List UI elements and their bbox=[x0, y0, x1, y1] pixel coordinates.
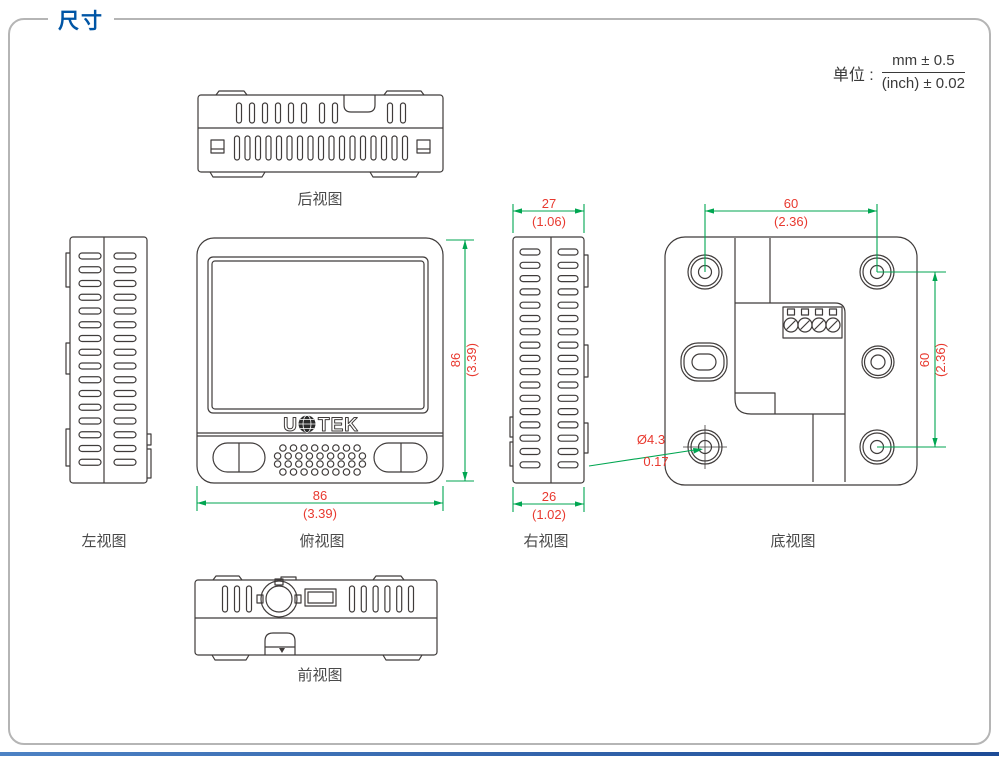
vent-slot bbox=[558, 369, 578, 375]
vent-slot bbox=[558, 342, 578, 348]
dim-60-h-mm: 60 bbox=[751, 196, 831, 211]
vent-slot bbox=[329, 136, 334, 160]
vent-slot bbox=[558, 355, 578, 361]
speaker-hole bbox=[285, 453, 291, 459]
vent-slot bbox=[401, 103, 406, 123]
vent-slot bbox=[79, 281, 101, 287]
usb-port bbox=[305, 589, 336, 606]
vent-slot bbox=[114, 446, 136, 452]
speaker-hole bbox=[327, 453, 333, 459]
vent-slot bbox=[558, 302, 578, 308]
speaker-hole bbox=[301, 469, 307, 475]
vent-slot bbox=[520, 302, 540, 308]
globe-icon bbox=[299, 416, 316, 433]
vent-slot bbox=[114, 281, 136, 287]
speaker-hole bbox=[280, 469, 286, 475]
left-button bbox=[213, 443, 265, 472]
dim-86-height: 86 (3.39) bbox=[446, 315, 482, 405]
units-label: 单位 : bbox=[833, 61, 874, 85]
vent-slot bbox=[277, 136, 282, 160]
dimension-lines bbox=[197, 204, 946, 512]
dim-60-v-mm: 60 bbox=[917, 315, 933, 405]
units-mm: mm ± 0.5 bbox=[882, 52, 965, 73]
rear-bottom-tabs bbox=[210, 172, 419, 177]
vent-slot bbox=[79, 322, 101, 328]
speaker-hole bbox=[327, 461, 333, 467]
screw-slot bbox=[787, 321, 796, 330]
vent-slot bbox=[558, 395, 578, 401]
vent-slot bbox=[320, 103, 325, 123]
vent-slot bbox=[79, 446, 101, 452]
vent-slot bbox=[79, 377, 101, 383]
vent-slot bbox=[558, 289, 578, 295]
vent-slot bbox=[558, 262, 578, 268]
vent-slot bbox=[558, 249, 578, 255]
units-fraction: mm ± 0.5 (inch) ± 0.02 bbox=[882, 52, 965, 93]
mounting-holes bbox=[688, 255, 894, 464]
vent-slot bbox=[114, 432, 136, 438]
vent-slot bbox=[114, 418, 136, 424]
rear-bottom-vents bbox=[235, 136, 408, 160]
vent-slot bbox=[361, 586, 366, 612]
speaker-hole bbox=[312, 469, 318, 475]
dim-27-mm: 27 bbox=[509, 196, 589, 211]
vent-slot bbox=[558, 409, 578, 415]
vent-slot bbox=[520, 462, 540, 468]
logo-text-left: U bbox=[283, 415, 297, 436]
vent-slot bbox=[79, 349, 101, 355]
speaker-hole bbox=[274, 453, 280, 459]
bottom-view bbox=[665, 237, 917, 485]
screen-outer bbox=[208, 257, 428, 413]
vent-slot bbox=[340, 136, 345, 160]
front-left-vents bbox=[223, 586, 252, 612]
speaker-hole bbox=[274, 461, 280, 467]
right-view-vents-col2 bbox=[558, 249, 578, 468]
vent-slot bbox=[409, 586, 414, 612]
vent-slot bbox=[520, 409, 540, 415]
front-clip bbox=[265, 633, 295, 655]
vent-slot bbox=[350, 136, 355, 160]
speaker-hole bbox=[301, 445, 307, 451]
vent-slot bbox=[114, 308, 136, 314]
vent-slot bbox=[114, 363, 136, 369]
vent-slot bbox=[520, 249, 540, 255]
vent-slot bbox=[558, 462, 578, 468]
speaker-hole bbox=[306, 461, 312, 467]
vent-slot bbox=[276, 103, 281, 123]
left-view-vents-col1 bbox=[79, 253, 101, 465]
dim-26-inch: (1.02) bbox=[509, 507, 589, 522]
speaker-hole bbox=[354, 445, 360, 451]
vent-slot bbox=[79, 308, 101, 314]
left-view bbox=[66, 237, 151, 483]
vent-slot bbox=[333, 103, 338, 123]
vent-slot bbox=[302, 103, 307, 123]
logo-text-right: TEK bbox=[318, 415, 359, 436]
vent-slot bbox=[350, 586, 355, 612]
vent-slot bbox=[114, 404, 136, 410]
vent-slot bbox=[79, 418, 101, 424]
dim-86-height-inch: (3.39) bbox=[464, 315, 480, 405]
vent-slot bbox=[558, 435, 578, 441]
terminal-slot bbox=[802, 309, 809, 315]
vent-slot bbox=[558, 422, 578, 428]
speaker-hole bbox=[285, 461, 291, 467]
screw-slot bbox=[801, 321, 810, 330]
vent-slot bbox=[79, 432, 101, 438]
dim-60-v-inch: (2.36) bbox=[933, 315, 949, 405]
units-note: 单位 : mm ± 0.5 (inch) ± 0.02 bbox=[833, 52, 965, 93]
vent-slot bbox=[114, 336, 136, 342]
rear-view bbox=[198, 91, 443, 177]
speaker-hole bbox=[333, 469, 339, 475]
speaker-holes bbox=[274, 445, 365, 475]
vent-slot bbox=[245, 136, 250, 160]
rear-notch bbox=[344, 95, 375, 112]
vent-slot bbox=[520, 276, 540, 282]
dimension-drawing: U TEK bbox=[0, 0, 999, 763]
footer-bar bbox=[0, 752, 999, 756]
dim-86-width-inch: (3.39) bbox=[280, 506, 360, 521]
vent-slot bbox=[520, 449, 540, 455]
vent-slot bbox=[114, 377, 136, 383]
vent-slot bbox=[558, 316, 578, 322]
top-view: U TEK bbox=[197, 238, 443, 483]
top-view-label: 俯视图 bbox=[262, 530, 382, 551]
round-connector bbox=[257, 579, 301, 617]
units-inch: (inch) ± 0.02 bbox=[882, 73, 965, 93]
front-right-vents bbox=[350, 586, 414, 612]
dim-86-width-mm: 86 bbox=[280, 488, 360, 503]
speaker-hole bbox=[296, 453, 302, 459]
vent-slot bbox=[263, 103, 268, 123]
vent-slot bbox=[266, 136, 271, 160]
vent-slot bbox=[371, 136, 376, 160]
vent-slot bbox=[520, 329, 540, 335]
vent-slot bbox=[247, 586, 252, 612]
vent-slot bbox=[558, 382, 578, 388]
speaker-hole bbox=[312, 445, 318, 451]
speaker-hole bbox=[359, 461, 365, 467]
vent-slot bbox=[79, 336, 101, 342]
vent-slot bbox=[79, 391, 101, 397]
vent-slot bbox=[520, 435, 540, 441]
front-view-label: 前视图 bbox=[260, 664, 380, 685]
speaker-hole bbox=[354, 469, 360, 475]
vent-slot bbox=[79, 253, 101, 259]
bottom-view-label: 底视图 bbox=[733, 530, 853, 551]
speaker-hole bbox=[359, 453, 365, 459]
terminal-slot bbox=[788, 309, 795, 315]
vent-slot bbox=[235, 586, 240, 612]
speaker-hole bbox=[343, 469, 349, 475]
vent-slot bbox=[114, 322, 136, 328]
terminal-slot bbox=[830, 309, 837, 315]
vent-slot bbox=[520, 395, 540, 401]
speaker-hole bbox=[306, 453, 312, 459]
vent-slot bbox=[382, 136, 387, 160]
vent-slot bbox=[558, 329, 578, 335]
dim-60-v: 60 (2.36) bbox=[915, 315, 951, 405]
left-view-vents-col2 bbox=[114, 253, 136, 465]
speaker-hole bbox=[290, 469, 296, 475]
front-feet bbox=[212, 655, 422, 660]
speaker-hole bbox=[338, 461, 344, 467]
right-view bbox=[510, 237, 588, 483]
vent-slot bbox=[520, 355, 540, 361]
terminal-slot bbox=[816, 309, 823, 315]
right-view-vents-col1 bbox=[520, 249, 540, 468]
vent-slot bbox=[79, 363, 101, 369]
dim-60-h-inch: (2.36) bbox=[751, 214, 831, 229]
page-title: 尺寸 bbox=[48, 5, 114, 35]
speaker-hole bbox=[322, 469, 328, 475]
screen-inner bbox=[212, 261, 424, 409]
dim-86-height-mm: 86 bbox=[448, 315, 464, 405]
vent-slot bbox=[114, 294, 136, 300]
speaker-hole bbox=[290, 445, 296, 451]
front-view bbox=[195, 576, 437, 660]
vent-slot bbox=[385, 586, 390, 612]
uotek-logo: U TEK bbox=[283, 415, 359, 436]
side-hole bbox=[862, 346, 894, 378]
right-view-label: 右视图 bbox=[486, 530, 606, 551]
rear-top-vents bbox=[237, 103, 406, 123]
dim-hole-dia-mm: Ø4.3 bbox=[611, 432, 691, 447]
rear-view-label: 后视图 bbox=[260, 188, 380, 209]
vent-slot bbox=[79, 459, 101, 465]
dim-26-mm: 26 bbox=[509, 489, 589, 504]
vent-slot bbox=[114, 349, 136, 355]
din-rail-slot bbox=[681, 343, 727, 381]
dim-hole-dia-inch: 0.17 bbox=[616, 454, 696, 469]
vent-slot bbox=[373, 586, 378, 612]
vent-slot bbox=[520, 382, 540, 388]
vent-slot bbox=[223, 586, 228, 612]
vent-slot bbox=[392, 136, 397, 160]
vent-slot bbox=[114, 391, 136, 397]
vent-slot bbox=[235, 136, 240, 160]
vent-slot bbox=[289, 103, 294, 123]
vent-slot bbox=[520, 422, 540, 428]
vent-slot bbox=[388, 103, 393, 123]
speaker-hole bbox=[296, 461, 302, 467]
vent-slot bbox=[256, 136, 261, 160]
vent-slot bbox=[79, 267, 101, 273]
vent-slot bbox=[237, 103, 242, 123]
speaker-hole bbox=[317, 453, 323, 459]
recess-contour bbox=[735, 238, 845, 482]
speaker-hole bbox=[343, 445, 349, 451]
vent-slot bbox=[520, 262, 540, 268]
vent-slot bbox=[520, 369, 540, 375]
vent-slot bbox=[319, 136, 324, 160]
terminal-block bbox=[783, 307, 842, 338]
speaker-hole bbox=[322, 445, 328, 451]
vent-slot bbox=[397, 586, 402, 612]
left-view-label: 左视图 bbox=[44, 530, 164, 551]
speaker-hole bbox=[349, 461, 355, 467]
vent-slot bbox=[520, 289, 540, 295]
speaker-hole bbox=[280, 445, 286, 451]
vent-slot bbox=[361, 136, 366, 160]
vent-slot bbox=[558, 449, 578, 455]
vent-slot bbox=[520, 342, 540, 348]
screw-slot bbox=[815, 321, 824, 330]
vent-slot bbox=[287, 136, 292, 160]
right-button bbox=[374, 443, 427, 472]
vent-slot bbox=[520, 316, 540, 322]
screw-slot bbox=[829, 321, 838, 330]
dim-27-inch: (1.06) bbox=[509, 214, 589, 229]
vent-slot bbox=[114, 267, 136, 273]
vent-slot bbox=[79, 294, 101, 300]
vent-slot bbox=[298, 136, 303, 160]
vent-slot bbox=[250, 103, 255, 123]
vent-slot bbox=[79, 404, 101, 410]
vent-slot bbox=[114, 459, 136, 465]
vent-slot bbox=[114, 253, 136, 259]
speaker-hole bbox=[338, 453, 344, 459]
speaker-hole bbox=[333, 445, 339, 451]
vent-slot bbox=[403, 136, 408, 160]
speaker-hole bbox=[317, 461, 323, 467]
vent-slot bbox=[558, 276, 578, 282]
speaker-hole bbox=[349, 453, 355, 459]
vent-slot bbox=[308, 136, 313, 160]
